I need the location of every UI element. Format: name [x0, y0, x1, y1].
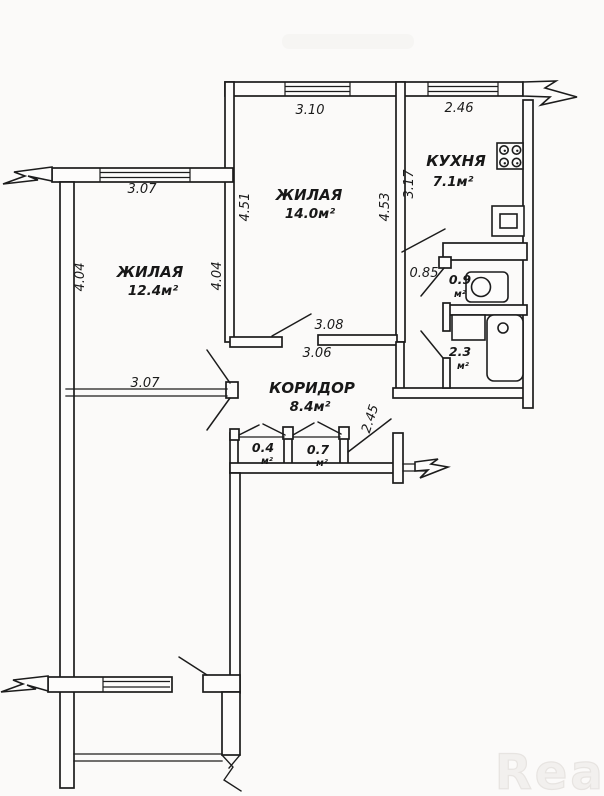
dim-living-left-top: 3.07 — [128, 182, 158, 197]
area-label-bathroom: 2.3 — [449, 344, 471, 359]
watermark: Real — [495, 745, 604, 796]
door-swing-bathroom — [421, 331, 443, 358]
dim-kitchen-top: 2.46 — [445, 101, 474, 116]
dim-corridor-top-b: 3.06 — [303, 346, 332, 361]
area-label-corridor: 8.4м² — [290, 399, 331, 415]
door-swing-living-main — [272, 314, 311, 336]
door-swing-living-left — [207, 350, 230, 383]
dim-living-left-left: 4.04 — [73, 263, 88, 292]
break-arrow-closet-right — [415, 459, 448, 478]
floor-plan-canvas: ЖИЛАЯ 14.0м² 3.10 4.51 4.53 КУХНЯ 7.1м² … — [0, 0, 604, 796]
dim-living-left-right: 4.04 — [210, 262, 225, 291]
dim-living-left-bottom: 3.07 — [131, 376, 161, 391]
area-label-kitchen: 7.1м² — [433, 174, 474, 190]
break-arrow-mid-left — [1, 676, 48, 692]
dim-living-main-top: 3.10 — [296, 103, 325, 118]
area-label-living-left: 12.4м² — [128, 283, 178, 299]
area-label-living-main: 14.0м² — [285, 206, 335, 222]
room-label-corridor: КОРИДОР — [269, 379, 355, 397]
dim-corridor-right: 2.45 — [359, 403, 382, 435]
floor-plan-page: ЖИЛАЯ 14.0м² 3.10 4.51 4.53 КУХНЯ 7.1м² … — [0, 0, 604, 796]
room-label-living-left: ЖИЛАЯ — [116, 263, 184, 281]
scan-noise — [282, 34, 414, 49]
break-arrow-top-left — [3, 167, 52, 184]
break-bottom-wall — [222, 755, 241, 791]
area-label-wc: 0.9 — [449, 272, 471, 287]
door-swing-lower — [207, 398, 230, 430]
bathtub-icon — [487, 315, 523, 381]
door-swing-kitchen — [402, 229, 445, 252]
dim-hall-width: 0.85 — [410, 266, 439, 281]
unit-label-bathroom: м² — [457, 361, 470, 372]
room-label-kitchen: КУХНЯ — [426, 152, 486, 170]
thin-walls — [66, 389, 426, 761]
door-swing-bottom-section — [179, 657, 207, 675]
area-label-closet-big: 0.7 — [307, 442, 329, 457]
unit-label-wc: м² — [454, 289, 467, 300]
labels: ЖИЛАЯ 14.0м² 3.10 4.51 4.53 КУХНЯ 7.1м² … — [73, 101, 486, 469]
dim-living-main-right: 4.53 — [378, 193, 393, 222]
stove-icon — [497, 143, 523, 169]
toilet-icon — [466, 272, 508, 302]
unit-label-closet-big: м² — [316, 458, 329, 469]
unit-label-closet-small: м² — [261, 456, 274, 467]
dim-corridor-top-a: 3.08 — [315, 318, 344, 333]
dim-living-main-left: 4.51 — [238, 193, 253, 222]
area-label-closet-small: 0.4 — [252, 440, 274, 455]
room-label-living-main: ЖИЛАЯ — [275, 186, 343, 204]
dim-kitchen-left: 3.17 — [402, 169, 417, 199]
sink-icon — [492, 206, 524, 236]
washbasin-icon — [452, 315, 485, 340]
